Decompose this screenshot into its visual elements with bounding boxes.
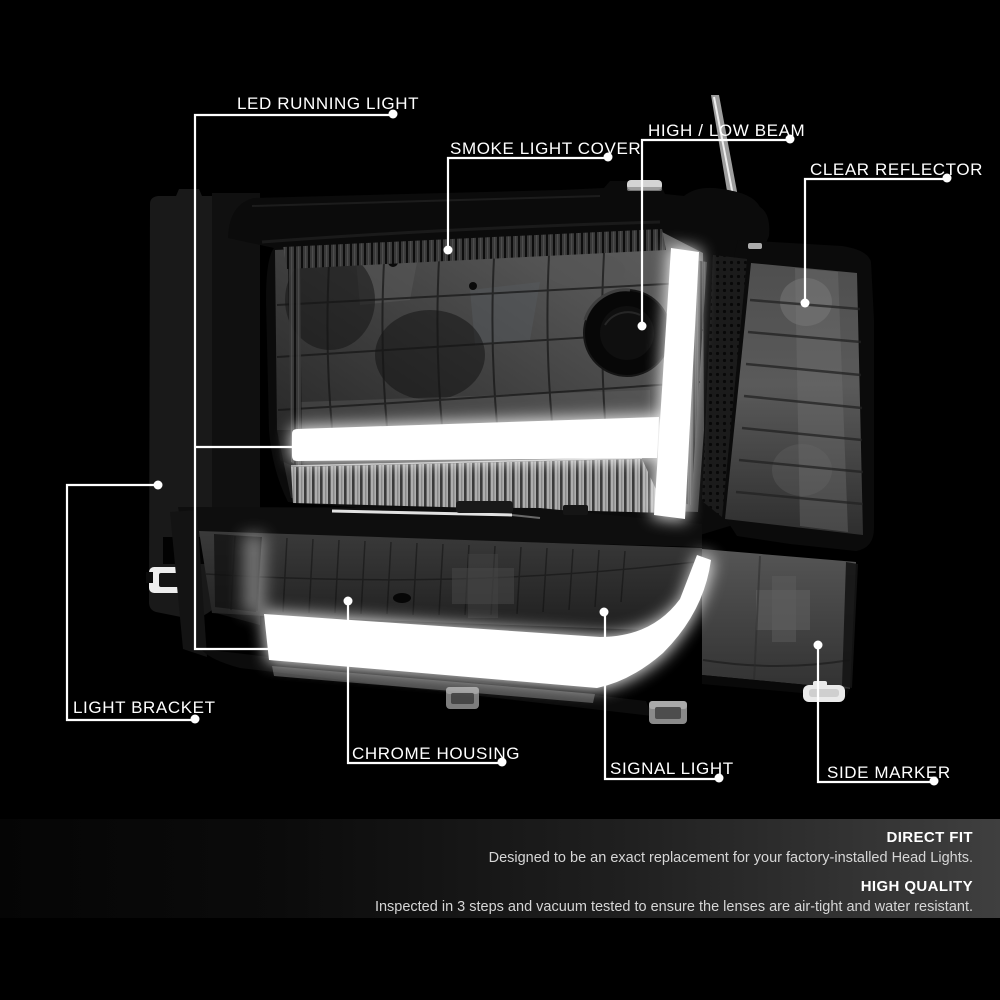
feature-high-quality-description: Inspected in 3 steps and vacuum tested t… bbox=[375, 899, 973, 916]
feature-high-quality-title: HIGH QUALITY bbox=[375, 879, 973, 896]
callout-light-bracket: LIGHT BRACKET bbox=[73, 699, 216, 716]
callout-signal-light: SIGNAL LIGHT bbox=[610, 760, 734, 777]
high-low-beam-projector bbox=[584, 290, 670, 376]
callout-led-running-light: LED RUNNING LIGHT bbox=[237, 95, 419, 112]
features-band: DIRECT FIT Designed to be an exact repla… bbox=[0, 819, 1000, 918]
callout-side-marker: SIDE MARKER bbox=[827, 764, 951, 781]
features-text-block: DIRECT FIT Designed to be an exact repla… bbox=[375, 830, 973, 928]
callout-high-low-beam: HIGH / LOW BEAM bbox=[648, 122, 805, 139]
feature-direct-fit-title: DIRECT FIT bbox=[375, 830, 973, 847]
callout-clear-reflector: CLEAR REFLECTOR bbox=[810, 161, 983, 178]
feature-direct-fit-description: Designed to be an exact replacement for … bbox=[375, 850, 973, 867]
product-image-stage: LED RUNNING LIGHT SMOKE LIGHT COVER HIGH… bbox=[0, 0, 1000, 1000]
callout-smoke-light-cover: SMOKE LIGHT COVER bbox=[450, 140, 641, 157]
callout-chrome-housing: CHROME HOUSING bbox=[352, 745, 520, 762]
